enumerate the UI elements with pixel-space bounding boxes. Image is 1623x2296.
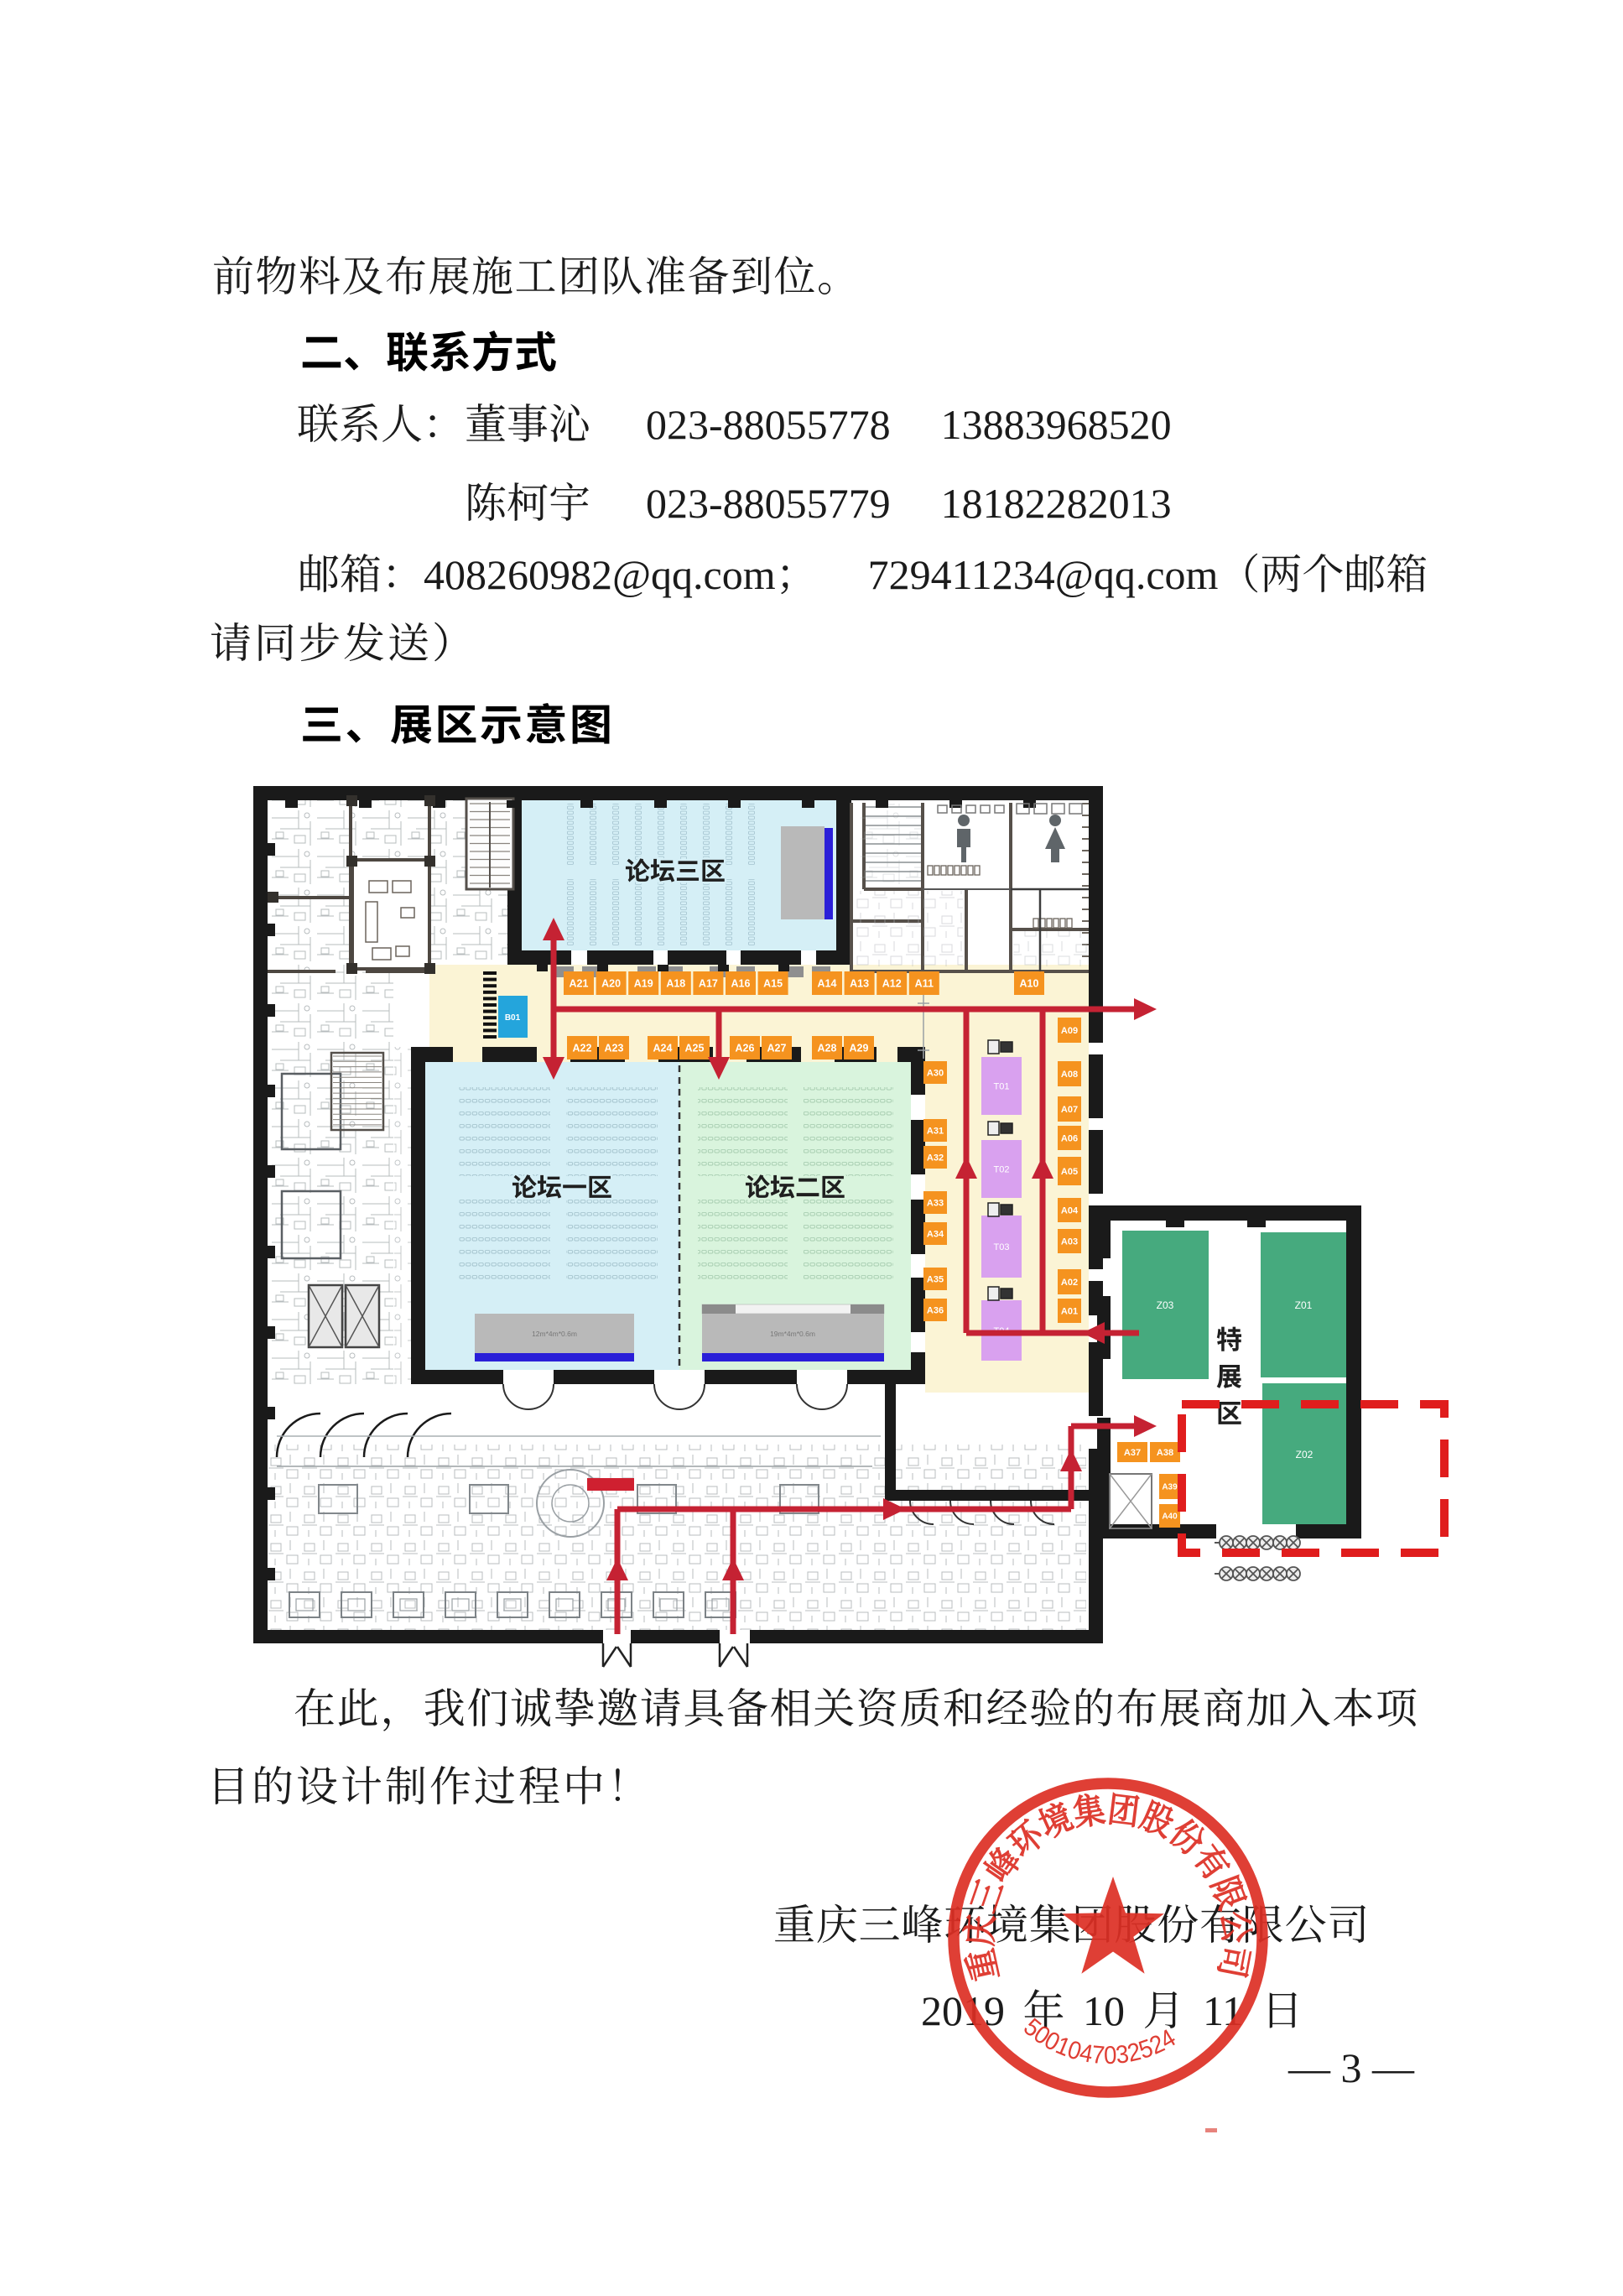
svg-text:A29: A29	[850, 1043, 869, 1054]
svg-text:A21: A21	[570, 978, 589, 990]
svg-text:A15: A15	[763, 978, 783, 990]
svg-text:论坛三区: 论坛三区	[625, 851, 726, 888]
svg-text:论坛二区: 论坛二区	[745, 1167, 845, 1204]
svg-text:Z02: Z02	[1296, 1449, 1313, 1460]
svg-text:A09: A09	[1061, 1026, 1078, 1036]
svg-text:A01: A01	[1061, 1306, 1078, 1316]
svg-text:A22: A22	[573, 1043, 592, 1054]
svg-text:A27: A27	[767, 1043, 787, 1054]
svg-text:展: 展	[1216, 1356, 1242, 1393]
svg-text:T03: T03	[994, 1242, 1010, 1252]
svg-text:A19: A19	[634, 978, 653, 990]
svg-text:A16: A16	[731, 978, 751, 990]
svg-text:T01: T01	[994, 1082, 1010, 1092]
svg-text:A26: A26	[736, 1043, 755, 1054]
svg-text:A02: A02	[1061, 1278, 1078, 1288]
svg-text:A30: A30	[927, 1068, 944, 1078]
svg-text:A03: A03	[1061, 1237, 1078, 1247]
svg-text:A08: A08	[1061, 1070, 1078, 1080]
svg-text:A14: A14	[818, 978, 837, 990]
svg-text:A13: A13	[850, 978, 869, 990]
svg-text:特: 特	[1216, 1319, 1242, 1356]
svg-text:A18: A18	[666, 978, 685, 990]
svg-text:A10: A10	[1020, 978, 1039, 990]
svg-text:19m*4m*0.6m: 19m*4m*0.6m	[770, 1330, 815, 1338]
svg-text:区: 区	[1216, 1393, 1242, 1430]
svg-text:A28: A28	[818, 1043, 837, 1054]
svg-text:Z01: Z01	[1295, 1299, 1313, 1311]
svg-text:A04: A04	[1061, 1205, 1079, 1216]
svg-text:重庆三峰环境集团股份有限公司: 重庆三峰环境集团股份有限公司	[952, 1782, 1264, 1986]
svg-text:A38: A38	[1157, 1448, 1173, 1458]
svg-text:论坛一区: 论坛一区	[512, 1167, 612, 1204]
svg-text:B01: B01	[505, 1013, 521, 1023]
svg-text:A37: A37	[1124, 1448, 1141, 1458]
svg-text:A12: A12	[882, 978, 902, 990]
svg-text:12m*4m*0.6m: 12m*4m*0.6m	[532, 1330, 577, 1338]
svg-text:A20: A20	[601, 978, 621, 990]
svg-text:A31: A31	[927, 1126, 944, 1136]
svg-text:A40: A40	[1162, 1512, 1178, 1522]
svg-text:T02: T02	[994, 1165, 1010, 1175]
svg-text:A23: A23	[605, 1043, 624, 1054]
svg-text:A07: A07	[1061, 1105, 1078, 1115]
svg-text:A32: A32	[927, 1153, 944, 1163]
svg-text:A05: A05	[1061, 1167, 1078, 1177]
svg-text:A33: A33	[927, 1198, 944, 1208]
svg-text:A34: A34	[927, 1229, 944, 1239]
svg-text:A11: A11	[915, 978, 934, 990]
svg-text:A36: A36	[927, 1305, 944, 1315]
svg-text:A24: A24	[653, 1043, 673, 1054]
svg-text:A06: A06	[1061, 1133, 1078, 1143]
svg-text:A39: A39	[1162, 1483, 1178, 1492]
svg-text:Z03: Z03	[1157, 1299, 1174, 1311]
svg-text:5001047032524: 5001047032524	[1018, 2013, 1180, 2070]
svg-text:A17: A17	[699, 978, 718, 990]
svg-text:A25: A25	[685, 1043, 705, 1054]
svg-text:A35: A35	[927, 1274, 944, 1284]
